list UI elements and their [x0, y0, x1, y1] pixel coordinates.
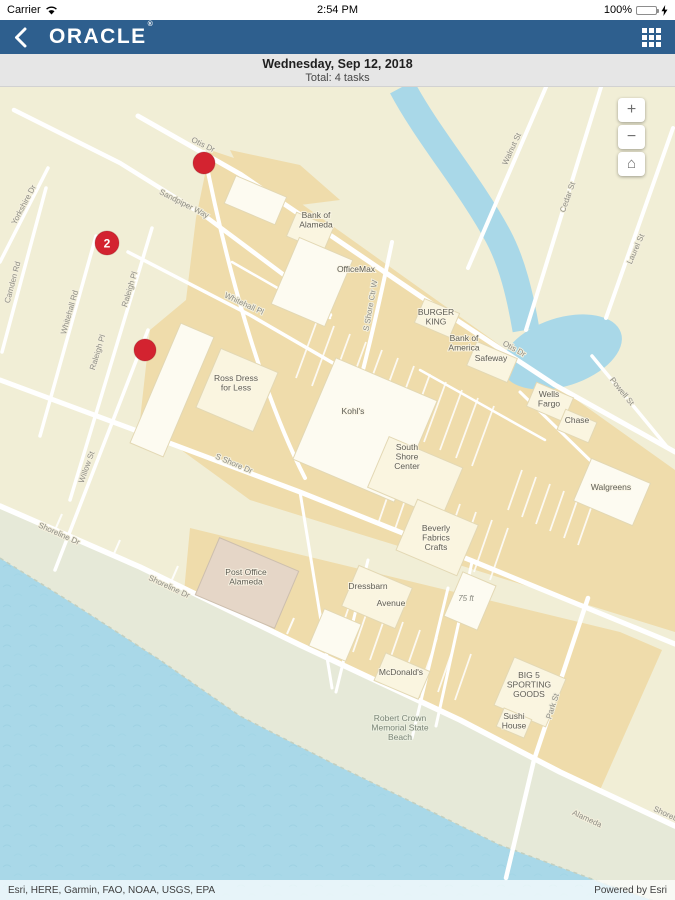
back-chevron-icon: [14, 27, 27, 48]
map-container[interactable]: Otis DrOtis DrSandpiper WayWhitehall PlY…: [0, 87, 675, 900]
charging-bolt-icon: [661, 5, 668, 16]
scale-label: 75 ft: [458, 594, 474, 603]
date-header: Wednesday, Sep 12, 2018 Total: 4 tasks: [0, 54, 675, 87]
place-label: Chase: [565, 415, 590, 425]
place-label: McDonald's: [379, 667, 423, 677]
place-label: SushiHouse: [502, 711, 527, 731]
nav-bar: ORACLE®: [0, 20, 675, 54]
place-label: Safeway: [475, 353, 508, 363]
battery-percent: 100%: [604, 4, 632, 16]
apps-grid-button[interactable]: [642, 28, 661, 47]
home-extent-button[interactable]: ⌂: [618, 152, 645, 176]
place-label: Bank ofAlameda: [299, 210, 333, 230]
back-button[interactable]: [14, 27, 27, 48]
place-label: Bank ofAmerica: [448, 333, 479, 353]
attribution-sources: Esri, HERE, Garmin, FAO, NOAA, USGS, EPA: [8, 885, 215, 896]
place-label: Walgreens: [591, 482, 631, 492]
place-label: Avenue: [377, 598, 406, 608]
powered-by-esri: Powered by Esri: [594, 885, 667, 896]
place-label: Post OfficeAlameda: [225, 567, 267, 587]
zoom-in-button[interactable]: +: [618, 98, 645, 122]
task-marker[interactable]: [193, 152, 215, 174]
clock: 2:54 PM: [0, 4, 675, 16]
map-attribution: Esri, HERE, Garmin, FAO, NOAA, USGS, EPA…: [0, 880, 675, 900]
registered-mark: ®: [148, 21, 155, 28]
map-canvas[interactable]: Otis DrOtis DrSandpiper WayWhitehall PlY…: [0, 87, 675, 900]
task-count-label: Total: 4 tasks: [0, 72, 675, 85]
place-label: Dressbarn: [348, 581, 387, 591]
place-label: SouthShoreCenter: [394, 442, 420, 471]
place-label: OfficeMax: [337, 264, 376, 274]
task-marker[interactable]: [134, 339, 156, 361]
map-controls: + − ⌂: [618, 98, 645, 176]
battery-icon: [636, 6, 657, 15]
status-bar: Carrier 2:54 PM 100%: [0, 0, 675, 20]
place-label: WellsFargo: [538, 389, 560, 409]
place-label: Kohl's: [342, 406, 365, 416]
zoom-out-button[interactable]: −: [618, 125, 645, 149]
date-label: Wednesday, Sep 12, 2018: [0, 57, 675, 72]
place-label: BeverlyFabricsCrafts: [422, 523, 451, 552]
marker-cluster-count: 2: [104, 237, 111, 251]
oracle-logo: ORACLE®: [49, 25, 153, 49]
